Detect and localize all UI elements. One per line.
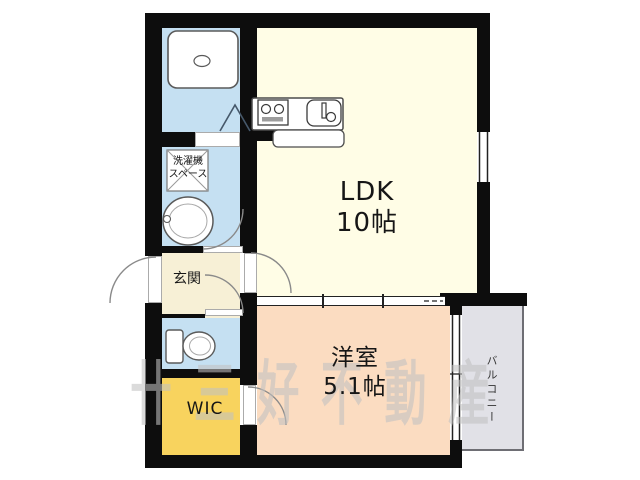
bedroom-size: 5.1帖 — [275, 373, 435, 402]
wall-balcony-top — [440, 293, 527, 306]
ldk-size: 10帖 — [287, 208, 447, 239]
laundry-space-label: 洗濯機 スペース — [164, 156, 212, 181]
laundry-space-line2: スペース — [164, 169, 212, 182]
wall-bath-divider — [145, 132, 195, 147]
wall-top — [145, 13, 490, 28]
wall-toilet-divider — [162, 314, 205, 318]
toilet-door-leaf — [205, 309, 243, 316]
entrance-label: 玄関 — [151, 271, 223, 288]
wall-washroom-divider — [145, 246, 203, 253]
ldk-name: LDK — [287, 177, 447, 208]
wall-bottom — [145, 455, 460, 468]
bathroom-door-opening — [195, 132, 240, 147]
ldk-door-leaf — [244, 253, 257, 293]
wall-bedroom-right-lower — [450, 440, 462, 468]
wall-kitchen-stub — [240, 130, 275, 141]
laundry-space-line1: 洗濯機 — [164, 156, 212, 169]
room-bathroom — [162, 28, 240, 132]
floor-plan: 卄三好不動産 LDK 10帖 洋室 5.1帖 玄関 WIC 洗濯機 スペース バ… — [0, 0, 640, 480]
bedroom-label: 洋室 5.1帖 — [275, 344, 435, 402]
wall-bedroom-right-upper — [450, 306, 462, 315]
balcony-label: バルコニー — [483, 347, 499, 432]
washroom-door-leaf — [203, 246, 243, 253]
room-ldk — [257, 28, 477, 296]
watermark-logo: 卄 — [130, 353, 194, 435]
wic-label: WIC — [170, 399, 240, 419]
bedroom-name: 洋室 — [275, 344, 435, 373]
sliding-door-partition — [257, 296, 445, 306]
wall-right-ldk — [477, 13, 490, 306]
ldk-label: LDK 10帖 — [287, 177, 447, 239]
